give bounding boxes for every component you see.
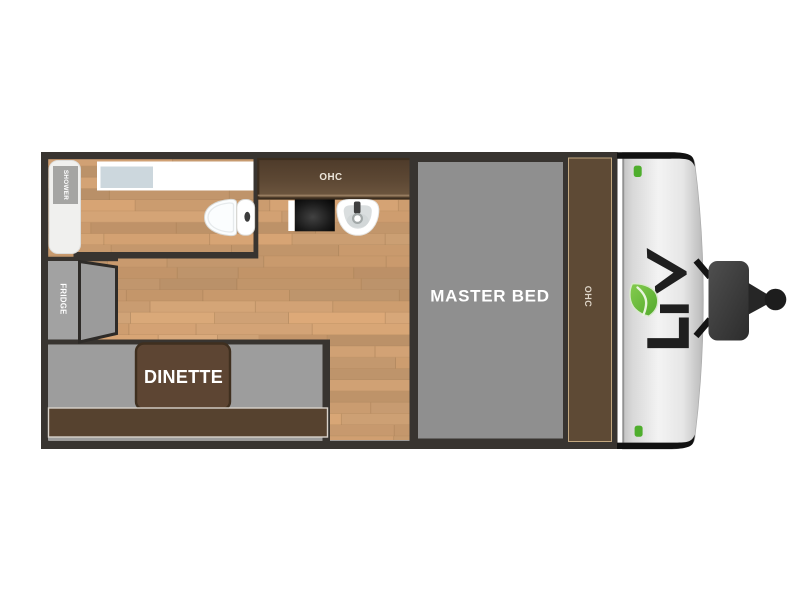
svg-text:FRIDGE: FRIDGE	[59, 283, 68, 314]
svg-text:OHC: OHC	[319, 172, 342, 183]
svg-text:MASTER BED: MASTER BED	[430, 287, 549, 306]
svg-text:DINETTE: DINETTE	[144, 367, 223, 387]
svg-text:SHOWER: SHOWER	[62, 170, 69, 200]
svg-text:OHC: OHC	[583, 286, 593, 308]
